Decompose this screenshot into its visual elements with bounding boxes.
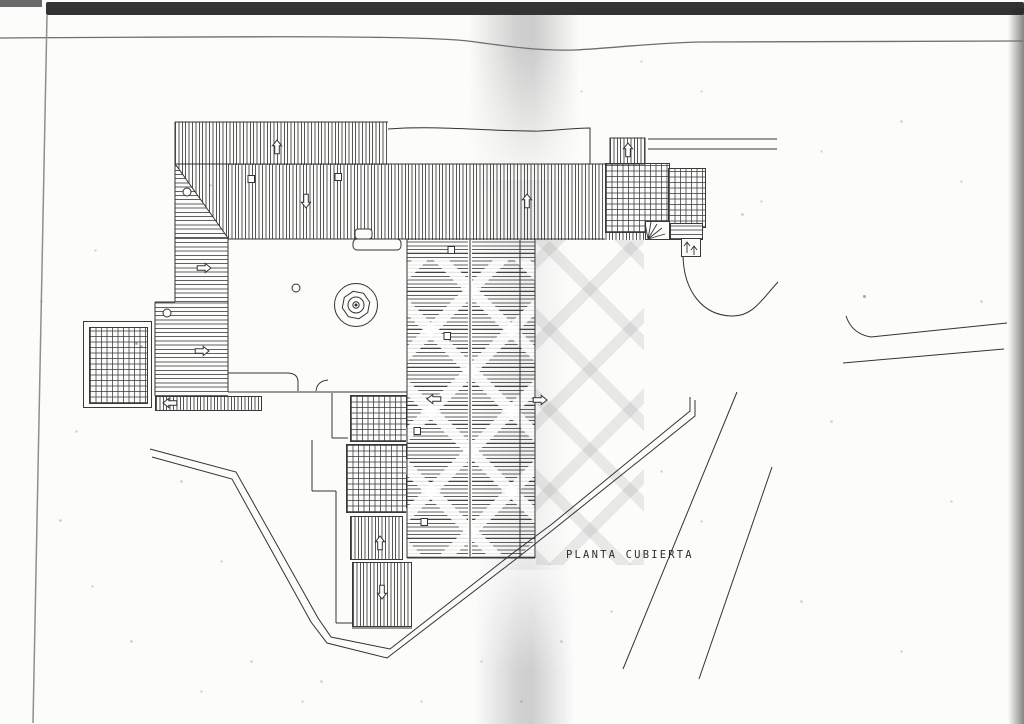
roof-vent-block-right <box>610 138 645 164</box>
paper-fold-shadow-bottom <box>474 545 574 724</box>
scan-watermark-over-roof <box>406 260 536 555</box>
roof-lower-block-upper <box>350 516 403 560</box>
scan-top-band <box>46 2 1024 15</box>
roof-access-box <box>681 238 701 257</box>
roof-upper-band <box>175 122 388 165</box>
roof-left-wing-lower <box>155 302 228 396</box>
terrace-right-grid-small <box>668 168 706 228</box>
roof-left-wing-upper <box>175 237 228 302</box>
scanned-roof-plan-page: PLANTA CUBIERTA <box>0 0 1024 724</box>
scan-right-edge-shadow <box>1008 8 1024 724</box>
courtyard <box>228 239 407 392</box>
stair-box <box>645 221 670 240</box>
scan-noise <box>0 0 1 1</box>
roof-lower-block-lower <box>352 562 412 627</box>
drawing-caption: PLANTA CUBIERTA <box>566 549 694 561</box>
garden-curve-path <box>683 256 778 316</box>
terrace-left-grid <box>89 327 148 404</box>
site-road-lines <box>623 316 1007 679</box>
terrace-mid-grid-upper <box>350 395 407 442</box>
scan-watermark-over-paper <box>536 240 644 565</box>
scan-corner-smudge <box>0 0 42 7</box>
terrace-mid-grid-lower <box>346 444 407 513</box>
roof-second-band <box>228 164 670 240</box>
eave-strip-left <box>155 396 262 411</box>
